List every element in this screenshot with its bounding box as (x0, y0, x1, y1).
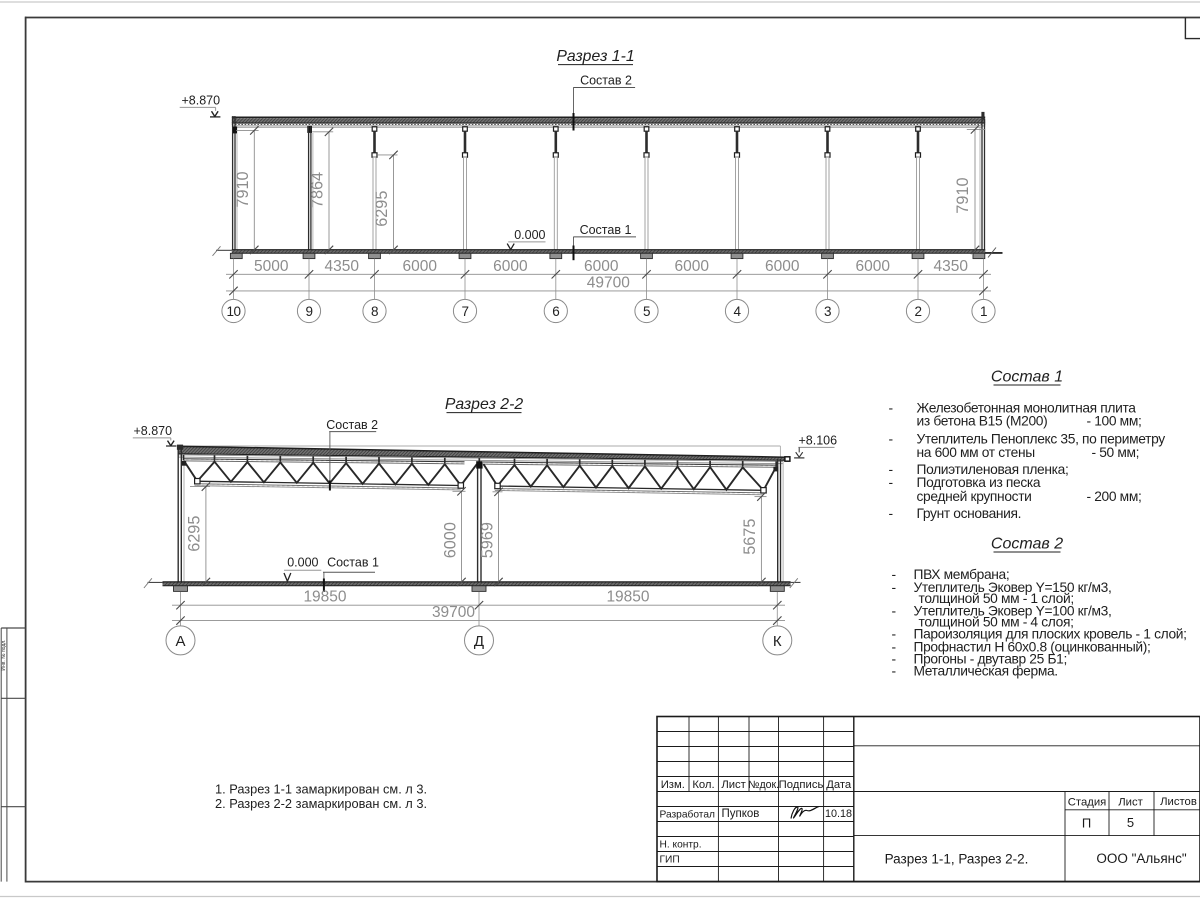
svg-text:19850: 19850 (606, 589, 649, 606)
svg-text:Разрез 1-1, Разрез 2-2.: Разрез 1-1, Разрез 2-2. (885, 852, 1029, 867)
svg-text:-: - (889, 506, 894, 521)
svg-text:- 50 мм;: - 50 мм; (1092, 445, 1140, 460)
svg-text:-: - (892, 580, 897, 595)
svg-text:5: 5 (1127, 815, 1134, 830)
svg-text:6295: 6295 (373, 191, 391, 227)
svg-text:+8.870: +8.870 (182, 94, 221, 108)
svg-text:3: 3 (824, 304, 831, 319)
svg-text:6295: 6295 (186, 516, 204, 552)
svg-text:7864: 7864 (308, 172, 326, 208)
svg-text:Состав 1: Состав 1 (327, 556, 379, 570)
svg-text:П: П (1082, 816, 1091, 831)
svg-text:Разрез 1-1: Разрез 1-1 (556, 48, 634, 65)
svg-text:49700: 49700 (587, 275, 630, 292)
svg-text:4350: 4350 (934, 258, 969, 275)
svg-text:№док.: №док. (748, 779, 779, 791)
svg-text:1. Разрез 1-1 замаркирован см.: 1. Разрез 1-1 замаркирован см. л 3. (215, 781, 427, 796)
svg-text:- 100 мм;: - 100 мм; (1087, 414, 1142, 429)
svg-text:-: - (892, 664, 897, 679)
svg-text:-: - (889, 431, 894, 446)
svg-text:2. Разрез 2-2 замаркирован см.: 2. Разрез 2-2 замаркирован см. л 3. (215, 796, 427, 811)
svg-text:средней крупности: средней крупности (917, 489, 1032, 504)
svg-text:Пупков: Пупков (722, 808, 760, 820)
svg-text:5969: 5969 (478, 522, 496, 558)
svg-text:-: - (892, 603, 897, 618)
svg-text:+8.106: +8.106 (799, 434, 838, 448)
svg-text:К: К (773, 633, 782, 650)
svg-text:Лист: Лист (721, 779, 746, 791)
svg-text:Лист: Лист (1118, 797, 1143, 809)
svg-text:7910: 7910 (954, 177, 972, 213)
svg-text:8: 8 (371, 304, 378, 319)
svg-text:Д: Д (474, 633, 484, 650)
svg-text:Инв. № подл.: Инв. № подл. (1, 639, 7, 670)
svg-text:6: 6 (552, 304, 559, 319)
svg-text:1: 1 (980, 304, 987, 319)
svg-text:5000: 5000 (254, 258, 289, 275)
svg-text:Стадия: Стадия (1068, 797, 1107, 809)
svg-text:6000: 6000 (856, 258, 891, 275)
svg-text:6000: 6000 (765, 258, 800, 275)
svg-text:- 200 мм;: - 200 мм; (1087, 489, 1142, 504)
svg-text:на 600 мм от стены: на 600 мм от стены (917, 445, 1035, 460)
svg-text:Н. контр.: Н. контр. (660, 840, 702, 851)
svg-text:0.000: 0.000 (287, 555, 318, 569)
svg-text:6000: 6000 (493, 258, 528, 275)
svg-text:-: - (889, 400, 894, 415)
svg-text:А: А (175, 633, 185, 650)
svg-text:ООО "Альянс": ООО "Альянс" (1096, 851, 1186, 866)
svg-text:Дата: Дата (826, 779, 852, 791)
svg-text:2: 2 (914, 304, 921, 319)
svg-text:6000: 6000 (584, 258, 619, 275)
svg-text:10: 10 (226, 304, 240, 319)
svg-text:39700: 39700 (432, 604, 475, 621)
svg-text:5675: 5675 (741, 519, 759, 555)
svg-text:7910: 7910 (234, 171, 252, 207)
svg-text:9: 9 (305, 304, 312, 319)
svg-text:6000: 6000 (403, 258, 438, 275)
svg-text:Грунт основания.: Грунт основания. (917, 506, 1022, 521)
svg-text:Подпись: Подпись (779, 779, 824, 791)
svg-text:19850: 19850 (303, 589, 346, 606)
svg-text:Кол.: Кол. (692, 779, 714, 791)
svg-text:4350: 4350 (325, 258, 360, 275)
svg-text:ГИП: ГИП (660, 855, 680, 866)
svg-text:0.000: 0.000 (514, 228, 545, 242)
svg-text:7: 7 (461, 304, 468, 319)
svg-text:Разработал: Разработал (660, 809, 716, 821)
svg-text:Состав 2: Состав 2 (326, 418, 378, 432)
svg-text:4: 4 (733, 304, 741, 319)
svg-text:Состав 2: Состав 2 (991, 535, 1063, 552)
svg-text:+8.870: +8.870 (134, 424, 173, 438)
svg-text:-: - (889, 475, 894, 490)
svg-text:Состав 2: Состав 2 (580, 74, 632, 88)
svg-text:6000: 6000 (675, 258, 710, 275)
svg-text:из бетона В15 (М200): из бетона В15 (М200) (917, 414, 1048, 429)
svg-text:Листов: Листов (1160, 796, 1197, 808)
svg-text:5: 5 (643, 304, 650, 319)
svg-text:Подготовка из песка: Подготовка из песка (917, 475, 1041, 490)
svg-text:Состав 1: Состав 1 (991, 369, 1063, 386)
svg-text:Металлическая ферма.: Металлическая ферма. (914, 664, 1058, 679)
svg-text:Изм.: Изм. (661, 779, 685, 791)
svg-text:10.18: 10.18 (825, 808, 852, 820)
svg-text:6000: 6000 (442, 522, 460, 558)
svg-text:Состав 1: Состав 1 (580, 223, 632, 237)
svg-text:Разрез 2-2: Разрез 2-2 (445, 396, 523, 413)
